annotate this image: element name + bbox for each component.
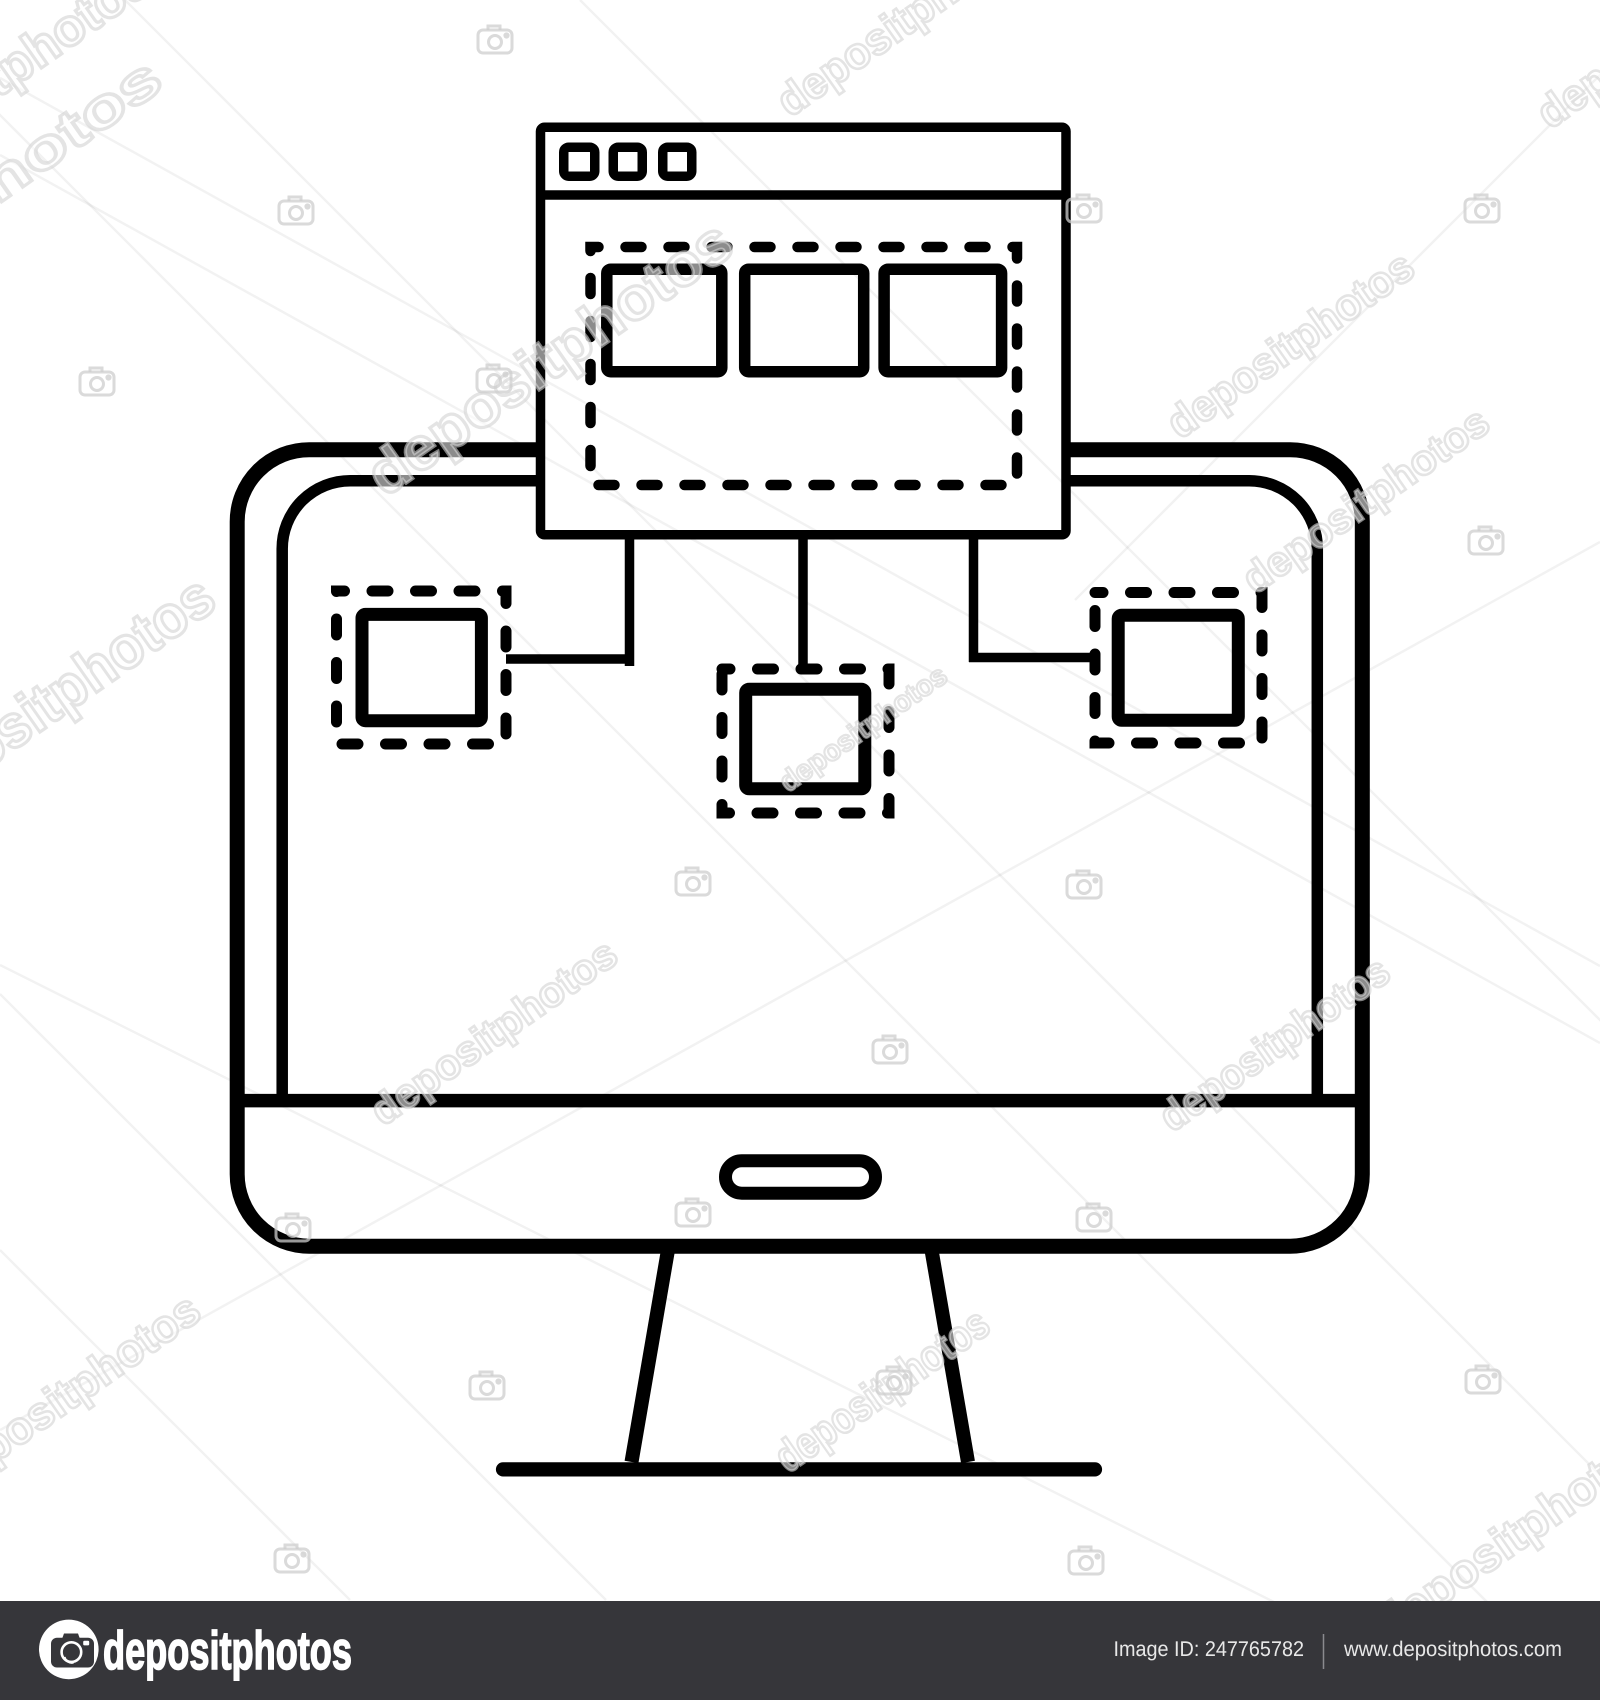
svg-text:depositphotos: depositphotos	[103, 1621, 352, 1681]
svg-text:www.depositphotos.com: www.depositphotos.com	[1343, 1637, 1562, 1661]
svg-text:Image ID: 247765782: Image ID: 247765782	[1114, 1637, 1305, 1661]
